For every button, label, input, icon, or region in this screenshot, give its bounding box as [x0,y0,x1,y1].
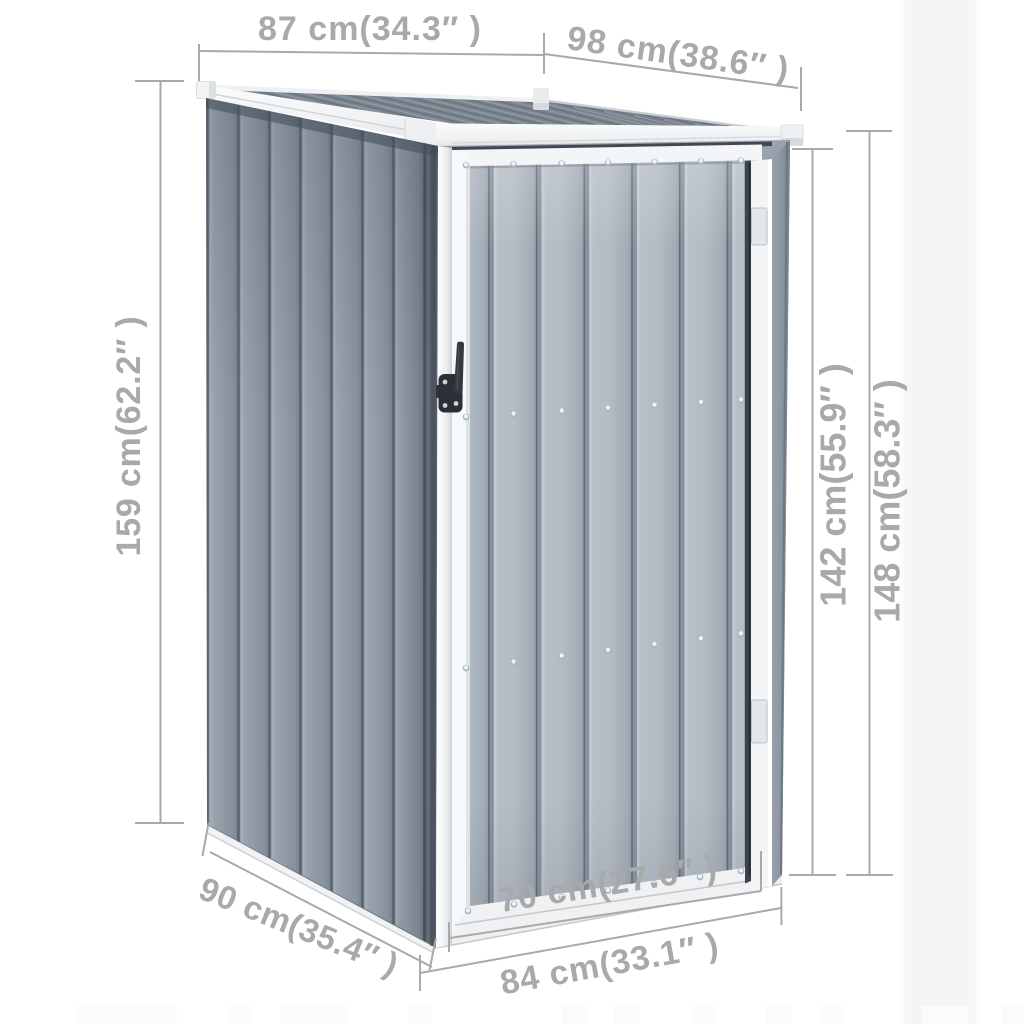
svg-text:87 cm(34.3″ ): 87 cm(34.3″ ) [258,10,482,48]
svg-text:148 cm(58.3″ ): 148 cm(58.3″ ) [867,379,908,622]
svg-text:159 cm(62.2″ ): 159 cm(62.2″ ) [110,315,148,556]
svg-text:142 cm(55.9″ ): 142 cm(55.9″ ) [813,363,854,606]
